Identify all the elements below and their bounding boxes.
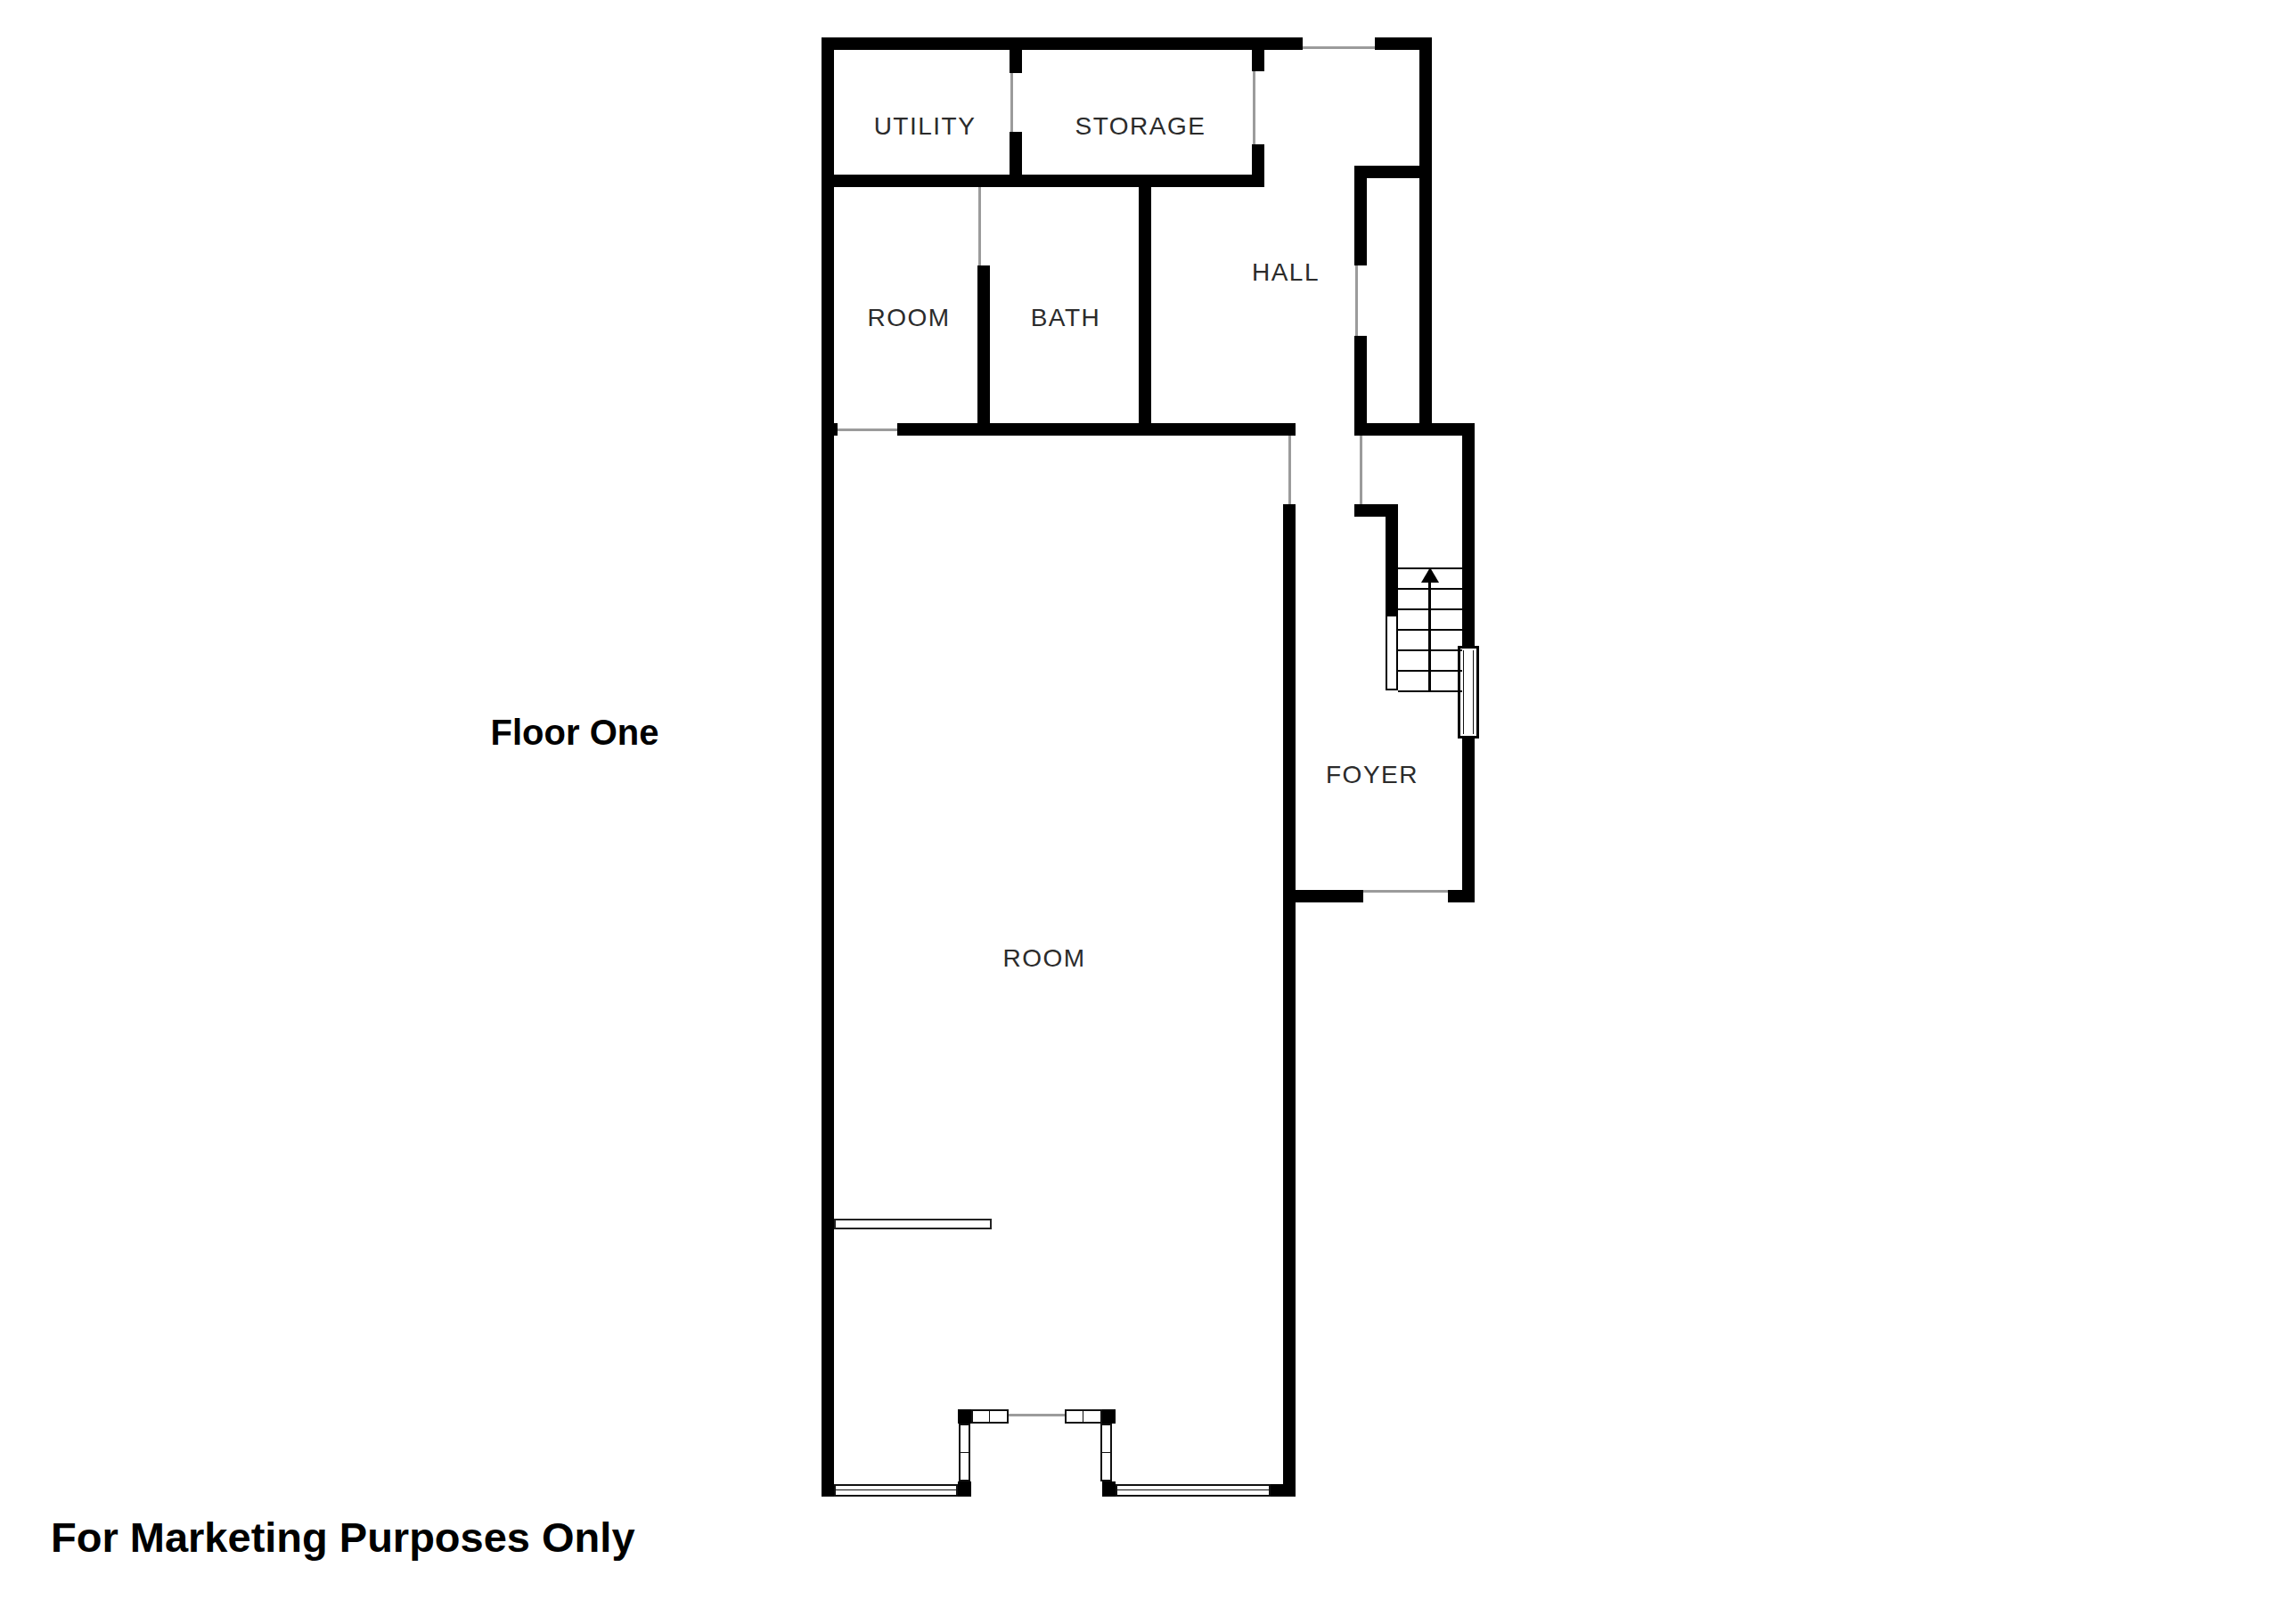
porch-window-left	[959, 1424, 970, 1481]
porch-window-right	[1100, 1424, 1112, 1481]
top-exterior-wall-right	[1375, 37, 1432, 50]
room-label-room-small: ROOM	[867, 304, 950, 332]
hall-doorway-line-right	[1360, 436, 1362, 504]
room-label-bath: BATH	[1031, 304, 1101, 332]
counter-shelf	[834, 1219, 992, 1229]
right-exterior-wall-upper	[1419, 50, 1432, 428]
nook-door-line	[1355, 265, 1358, 336]
nook-left-wall-upper	[1354, 178, 1367, 265]
room-right-wall	[1283, 504, 1296, 1497]
bath-hall-divider	[1139, 187, 1151, 423]
hall-doorway-line-left	[1288, 436, 1291, 504]
porch-pillar-left-top	[958, 1409, 971, 1424]
stair-side-wall	[1386, 517, 1398, 615]
room-bath-divider	[977, 265, 990, 423]
foyer-right-wall-upper	[1462, 423, 1475, 646]
floor-title: Floor One	[491, 713, 659, 753]
floor-plan: UTILITY STORAGE ROOM BATH HALL FOYER ROO…	[0, 0, 2281, 1624]
bottom-window-left	[834, 1484, 958, 1497]
utility-storage-door-line	[1010, 73, 1013, 132]
window-pane-line	[1102, 1452, 1110, 1453]
room-label-storage: STORAGE	[1075, 112, 1206, 141]
storage-right-wall-bottom	[1252, 144, 1264, 175]
window-pane-line	[836, 1489, 956, 1490]
foyer-bottom-wall-right	[1448, 890, 1475, 902]
nook-left-wall-lower	[1354, 336, 1367, 423]
foyer-window-pane	[1463, 650, 1474, 734]
window-pane-line	[1083, 1411, 1083, 1422]
room-label-hall: HALL	[1252, 258, 1320, 287]
foyer-entry-door-line	[1363, 890, 1448, 893]
stairs-up-arrow-icon	[1421, 567, 1439, 583]
utility-storage-bottom-wall	[822, 175, 1264, 187]
room-label-foyer: FOYER	[1326, 761, 1418, 789]
porch-sidelight-right	[1065, 1409, 1102, 1424]
room-door-line	[838, 428, 897, 431]
foyer-bottom-wall-left	[1296, 890, 1363, 902]
storage-door-line	[1253, 71, 1255, 144]
stairs-direction-shaft	[1428, 581, 1431, 690]
room-bath-door-line	[978, 187, 981, 265]
porch-pillar-right-bottom	[1102, 1481, 1116, 1497]
nook-top-wall	[1354, 166, 1432, 178]
entry-door-opening-line	[1009, 1414, 1065, 1416]
left-exterior-wall	[822, 37, 834, 1497]
top-wall-window-line	[1303, 46, 1375, 49]
stair-banister	[1386, 615, 1398, 690]
utility-storage-divider-top	[1010, 50, 1022, 73]
stair-top-wall	[1354, 504, 1398, 517]
section-divider-wall-stub	[822, 423, 838, 436]
top-exterior-wall-left	[822, 37, 1303, 50]
window-pane-line	[1117, 1489, 1269, 1490]
storage-right-wall-top	[1252, 50, 1264, 71]
window-pane-line	[989, 1411, 990, 1422]
disclaimer-text: For Marketing Purposes Only	[51, 1513, 635, 1562]
bottom-wall-right-corner	[1271, 1484, 1296, 1497]
section-divider-wall-main	[897, 423, 1296, 436]
porch-pillar-left-bottom	[958, 1481, 971, 1497]
porch-pillar-right-top	[1102, 1409, 1116, 1424]
section-divider-wall-right	[1354, 423, 1475, 436]
room-label-utility: UTILITY	[874, 112, 977, 141]
bottom-window-right	[1116, 1484, 1271, 1497]
utility-storage-divider-bottom	[1010, 132, 1022, 175]
foyer-right-wall-lower	[1462, 739, 1475, 902]
room-label-room-large: ROOM	[1002, 944, 1085, 973]
window-pane-line	[961, 1452, 969, 1453]
porch-sidelight-left	[971, 1409, 1009, 1424]
